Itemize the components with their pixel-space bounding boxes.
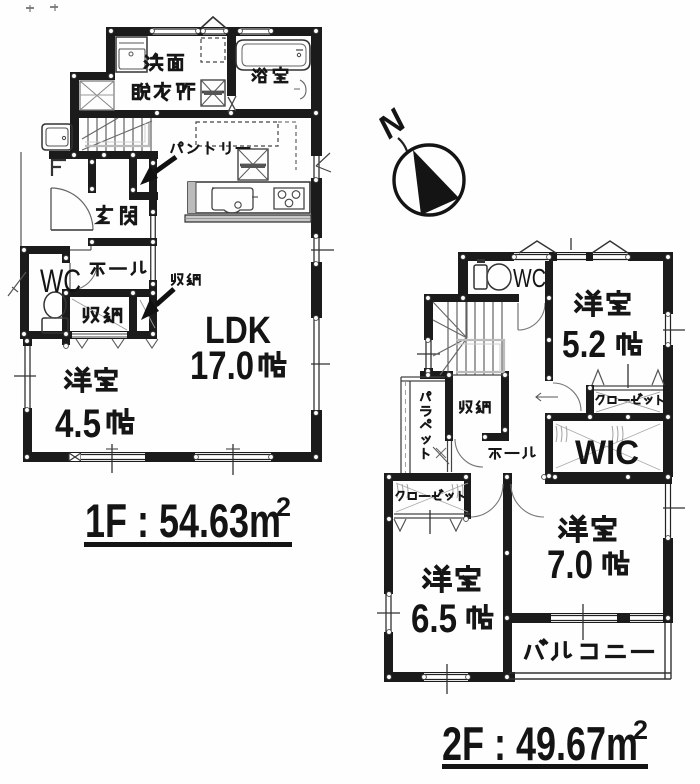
svg-text:7.0: 7.0 — [547, 543, 593, 587]
svg-text:1F : 54.63m: 1F : 54.63m — [85, 494, 281, 547]
svg-text:2F : 49.67m: 2F : 49.67m — [442, 717, 638, 770]
svg-text:5.2: 5.2 — [562, 324, 606, 366]
svg-text:WIC: WIC — [575, 434, 639, 472]
svg-text:4.5: 4.5 — [55, 402, 101, 446]
svg-text:2: 2 — [633, 715, 648, 745]
svg-text:WC: WC — [40, 263, 81, 299]
svg-text:17.0: 17.0 — [190, 344, 254, 388]
svg-text:6.5: 6.5 — [411, 597, 457, 641]
svg-text:2: 2 — [276, 492, 291, 522]
svg-text:WC: WC — [513, 263, 546, 293]
